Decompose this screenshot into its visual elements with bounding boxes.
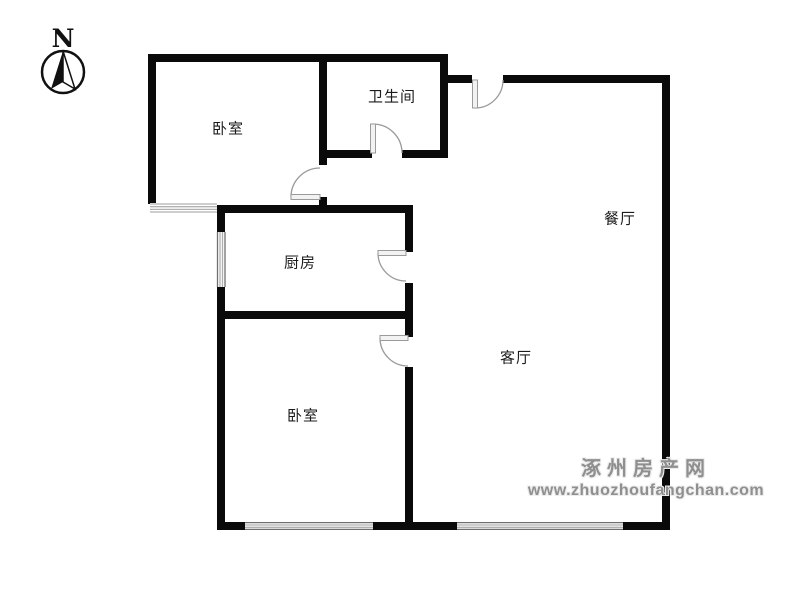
room-label-bedroom-top: 卧室 <box>212 118 244 139</box>
wall-kitchen-top <box>217 205 413 213</box>
watermark-site-url: www.zhuozhoufangchan.com <box>518 482 774 500</box>
window-kitchen-left <box>216 232 226 287</box>
wall-inner-east-seg2 <box>405 283 413 337</box>
room-label-bathroom: 卫生间 <box>368 86 416 107</box>
wall-bottom-seg2 <box>373 522 457 530</box>
room-label-living: 客厅 <box>500 347 532 368</box>
window-living-bottom <box>457 522 623 530</box>
north-arrow-icon <box>63 51 75 89</box>
wall-entry-right <box>503 75 670 83</box>
wall-inner-east-seg3 <box>405 367 413 522</box>
north-arrow-icon <box>51 51 63 89</box>
room-label-dining: 餐厅 <box>604 208 636 229</box>
window-bedroom-top <box>150 203 217 213</box>
wall-top-north <box>148 54 448 62</box>
window-bedroom-bottom <box>245 522 373 530</box>
compass: N <box>42 24 84 93</box>
compass-n-label: N <box>52 24 75 53</box>
wall-inner-east-seg1 <box>405 205 413 252</box>
wall-kitchen-bottom <box>217 311 413 319</box>
floor-plan-page: N <box>0 0 800 600</box>
wall-bedroom-top-left <box>148 54 156 204</box>
room-label-bedroom-bottom: 卧室 <box>287 405 319 426</box>
wall-bedroom-bathroom-divider <box>319 54 327 165</box>
door-bedroom-bottom <box>380 336 408 367</box>
wall-bathroom-right <box>440 54 448 158</box>
room-label-kitchen: 厨房 <box>284 252 316 273</box>
door-kitchen <box>378 251 406 282</box>
door-bathroom <box>371 124 403 153</box>
door-bedroom-top <box>291 168 320 200</box>
wall-left-lower <box>217 287 225 530</box>
watermark: 涿州房产网 www.zhuozhoufangchan.com <box>518 458 774 500</box>
wall-kitchen-left-upper <box>217 205 225 232</box>
door-entry <box>473 80 504 108</box>
watermark-site-name: 涿州房产网 <box>518 458 774 481</box>
